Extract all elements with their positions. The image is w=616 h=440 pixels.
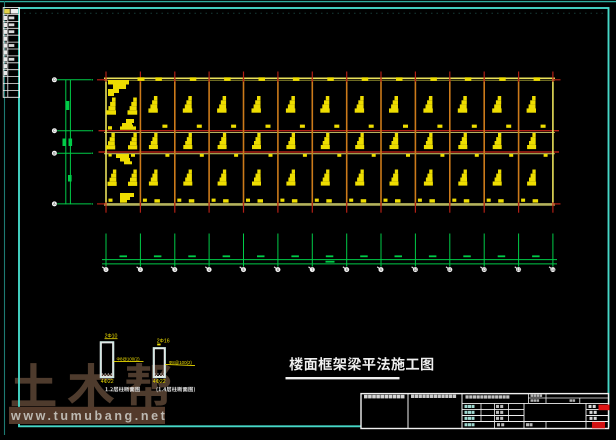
svg-text:11: 11 xyxy=(448,268,452,272)
svg-text:6: 6 xyxy=(277,268,279,272)
svg-text:9: 9 xyxy=(380,268,382,272)
svg-text:12: 12 xyxy=(482,268,486,272)
svg-text:1: 1 xyxy=(105,268,107,272)
svg-text:Φ8@100(2): Φ8@100(2) xyxy=(169,360,193,365)
svg-text:5: 5 xyxy=(243,268,245,272)
svg-text:www.tumubang.net: www.tumubang.net xyxy=(10,409,167,423)
svg-text:4: 4 xyxy=(208,268,210,272)
svg-text:Φ8@100(2): Φ8@100(2) xyxy=(117,357,141,362)
svg-text:3: 3 xyxy=(174,268,176,272)
svg-text:2: 2 xyxy=(139,268,141,272)
svg-text:10: 10 xyxy=(414,268,418,272)
svg-text:8: 8 xyxy=(346,268,348,272)
svg-text:4Φ22: 4Φ22 xyxy=(153,379,166,385)
svg-text:14: 14 xyxy=(551,268,555,272)
svg-text:4Φ22: 4Φ22 xyxy=(101,379,114,385)
svg-text:13: 13 xyxy=(517,268,521,272)
svg-text:7: 7 xyxy=(311,268,313,272)
